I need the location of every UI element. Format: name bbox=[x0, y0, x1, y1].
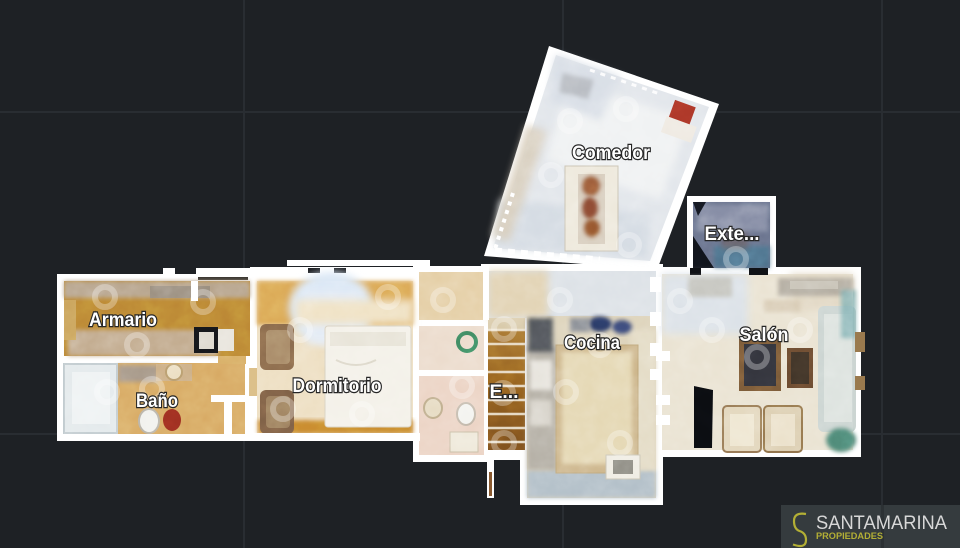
svg-text:E...: E... bbox=[490, 382, 519, 403]
svg-text:Salón: Salón bbox=[740, 325, 789, 346]
svg-text:Armario: Armario bbox=[89, 310, 157, 331]
svg-text:Cocina: Cocina bbox=[564, 333, 620, 354]
svg-text:Comedor: Comedor bbox=[572, 143, 651, 164]
svg-text:PROPIEDADES: PROPIEDADES bbox=[816, 531, 883, 542]
svg-text:Baño: Baño bbox=[136, 391, 178, 412]
svg-text:Dormitorio: Dormitorio bbox=[293, 376, 382, 397]
svg-text:Exte...: Exte... bbox=[705, 224, 760, 245]
